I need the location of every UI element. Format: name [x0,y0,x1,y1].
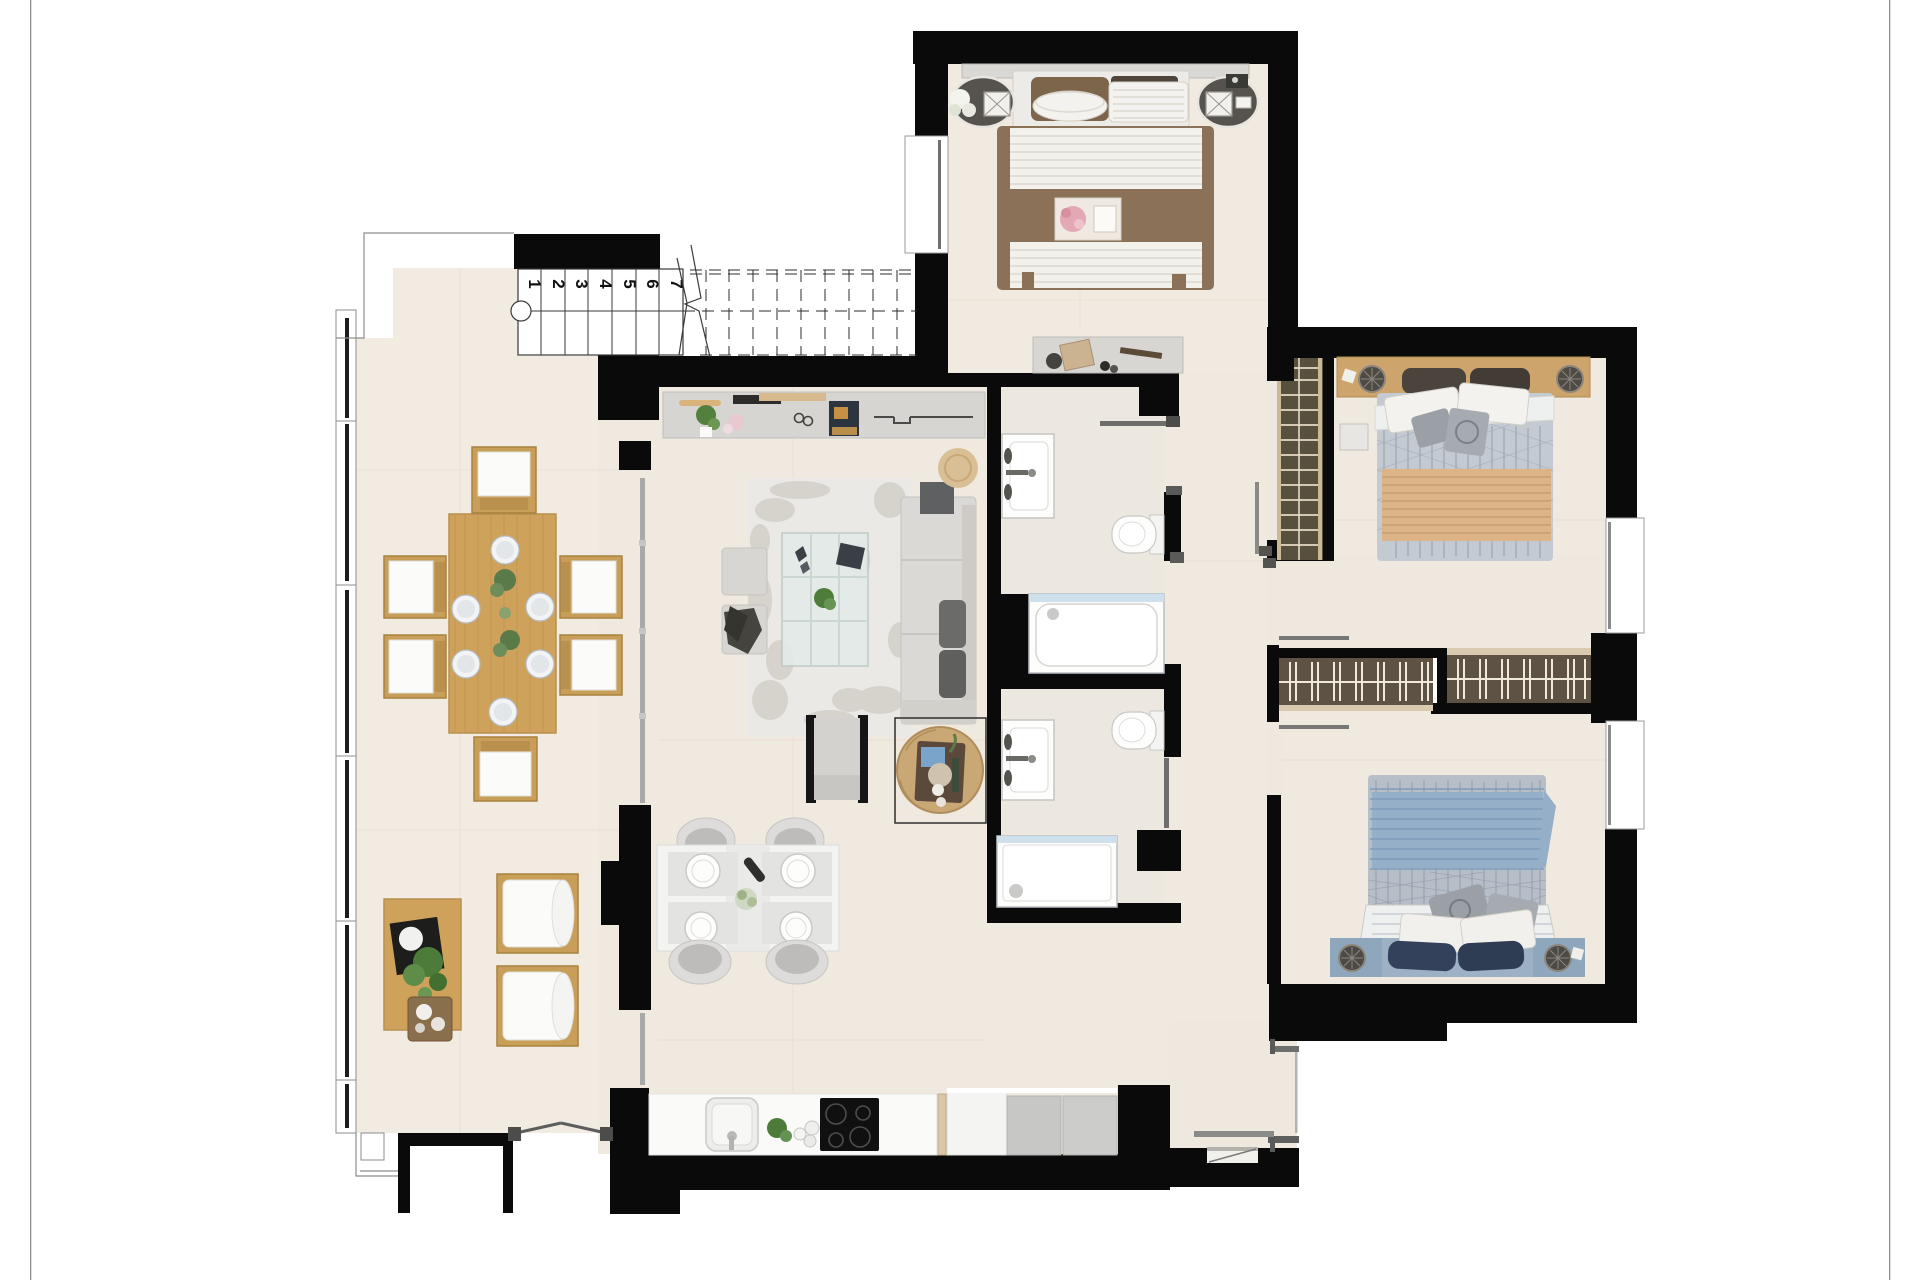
svg-text:5: 5 [620,279,639,288]
svg-text:2: 2 [549,279,568,288]
svg-text:1: 1 [525,279,544,288]
svg-text:6: 6 [643,279,662,288]
svg-text:3: 3 [572,279,591,288]
svg-text:4: 4 [596,279,615,289]
